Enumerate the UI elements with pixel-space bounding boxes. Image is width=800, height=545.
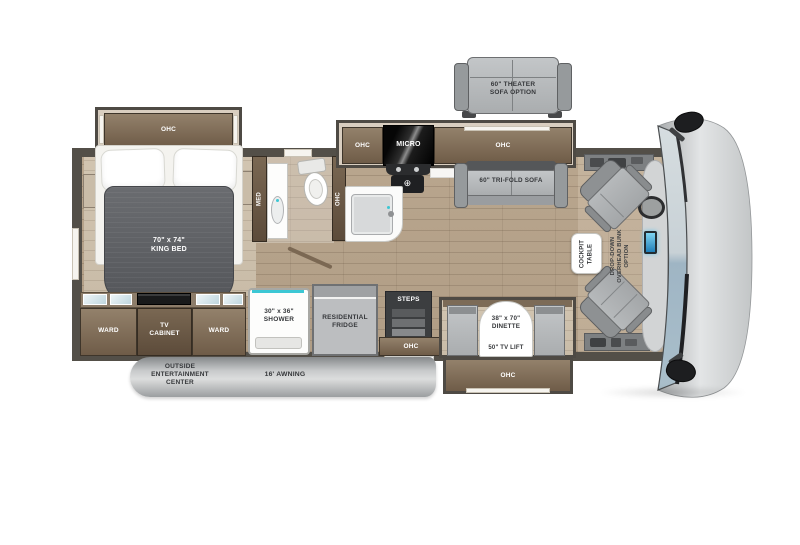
wall-ohc-cabinet: OHC <box>332 156 346 241</box>
theater-sofa-seam <box>512 60 513 111</box>
theater-sofa-armrest-left <box>454 63 469 111</box>
dash-vent-icon <box>625 339 637 346</box>
theater-sofa-body <box>467 57 559 114</box>
microwave-label: MICRO <box>384 141 433 150</box>
fridge-label: RESIDENTIAL FRIDGE <box>314 314 376 330</box>
shower-label: 30" x 36" SHOWER <box>250 308 308 324</box>
step-tread <box>392 319 425 327</box>
cockpit-table: COCKPIT TABLE <box>571 233 602 274</box>
bed-ohc-label: OHC <box>105 126 232 134</box>
trifold-armrest-left <box>454 163 468 208</box>
entry-ohc: OHC <box>379 337 443 356</box>
dinette-bench-left <box>447 305 478 356</box>
wardrobe-left: WARD <box>80 308 137 356</box>
sink-faucet-icon <box>388 211 394 217</box>
kitchen-ohc-left: OHC <box>342 127 383 164</box>
theater-sofa-option: 60" THEATER SOFA OPTION <box>454 55 572 119</box>
trifold-armrest-right <box>554 163 568 208</box>
med-label: MED <box>256 192 264 206</box>
kitchen-ohc-left-label: OHC <box>343 142 382 150</box>
cab-shadow <box>598 386 748 399</box>
theater-sofa-armrest-right <box>557 63 572 111</box>
theater-sofa-seam <box>470 77 556 78</box>
dash-vent-icon <box>631 157 643 164</box>
tv-panel <box>137 293 191 305</box>
kitchen-ohc-window <box>464 126 550 131</box>
dinette-label: 38" x 70" DINETTE <box>480 315 532 331</box>
cockpit-table-label: COCKPIT TABLE <box>579 239 594 267</box>
trifold-sofa: 60" TRI-FOLD SOFA <box>454 159 568 209</box>
entry-steps: STEPS <box>385 291 432 338</box>
trifold-skirt <box>466 196 556 205</box>
hood-knob-icon <box>414 167 419 172</box>
residential-fridge: RESIDENTIAL FRIDGE <box>312 284 378 356</box>
cab-nose <box>648 112 756 404</box>
trifold-back <box>466 161 556 170</box>
dinette-table: 38" x 70" DINETTE 50" TV LIFT <box>479 301 533 357</box>
kitchen-sink <box>351 194 393 235</box>
wardrobe-right: WARD <box>192 308 246 356</box>
med-cabinet: MED <box>252 156 267 242</box>
tv-cabinet-label: TV CABINET <box>138 322 191 338</box>
ward-right-label: WARD <box>193 327 245 335</box>
range-hood <box>386 164 431 175</box>
step-tread <box>392 309 425 317</box>
bed-overhead-cabinet: OHC <box>104 113 233 147</box>
kitchen-ohc-right-label: OHC <box>435 142 571 150</box>
steps-label: STEPS <box>386 296 431 304</box>
bed-blanket: 70" x 74" KING BED <box>104 186 234 304</box>
dash-vent-icon <box>590 338 606 347</box>
glass-panel <box>196 294 220 305</box>
hood-knob-icon <box>396 167 401 172</box>
sink-accent-icon <box>387 206 390 209</box>
dinette-ohc-label: OHC <box>446 372 570 380</box>
awning-label: 16' AWNING <box>240 371 330 379</box>
bench-headrest <box>449 307 476 314</box>
rear-window <box>72 228 79 280</box>
ward-left-label: WARD <box>81 327 136 335</box>
glass-panel <box>83 294 107 305</box>
wall-ohc-label: OHC <box>335 192 343 206</box>
floorplan-canvas: 60" THEATER SOFA OPTION OHC 70" x 74" KI… <box>0 0 800 545</box>
king-bed-label: 70" x 74" KING BED <box>105 237 233 255</box>
bathroom-skylight <box>284 149 312 157</box>
step-tread <box>392 329 425 336</box>
vanity-faucet-icon <box>276 199 279 202</box>
bed-slide-window-right <box>233 115 238 144</box>
trifold-seam <box>511 171 512 195</box>
bunk-option-area: DROP-DOWN OVERHEAD BUNK OPTION <box>610 214 644 298</box>
shower: 30" x 36" SHOWER <box>248 288 310 355</box>
awning: OUTSIDE ENTERTAINMENT CENTER 16' AWNING <box>130 357 436 397</box>
tv-lift-label: 50" TV LIFT <box>480 345 532 353</box>
dinette-bench-right <box>534 305 565 356</box>
glass-panel <box>110 294 132 305</box>
bunk-option-label: DROP-DOWN OVERHEAD BUNK OPTION <box>610 214 632 298</box>
microwave: MICRO <box>383 125 434 166</box>
dinette-ohc-window <box>466 388 550 393</box>
tv-cabinet: TV CABINET <box>137 308 192 356</box>
glass-panel <box>223 294 243 305</box>
outside-entertainment-label: OUTSIDE ENTERTAINMENT CENTER <box>130 363 230 387</box>
shower-pan <box>255 337 302 349</box>
chair-seam <box>613 181 637 205</box>
shower-glass-accent <box>252 290 304 293</box>
entry-ohc-label: OHC <box>380 343 442 351</box>
bench-headrest <box>536 307 563 314</box>
